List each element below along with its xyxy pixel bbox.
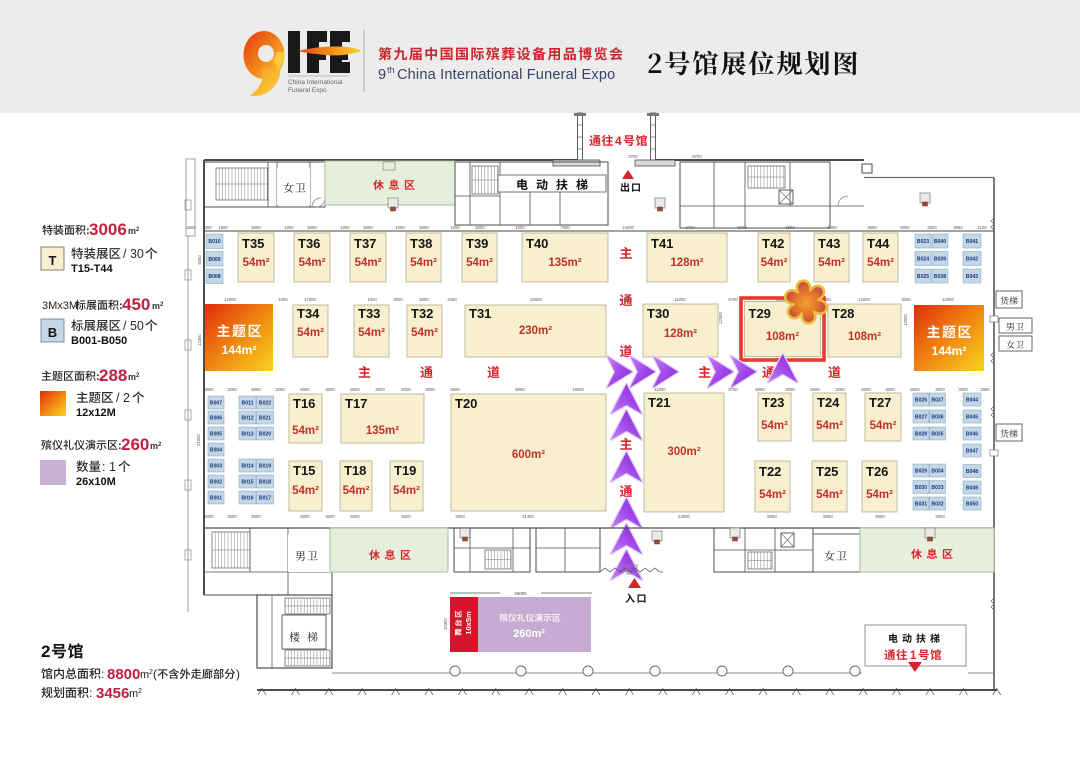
svg-text:T16: T16 [293, 396, 315, 411]
svg-text:54m²: 54m² [292, 485, 319, 497]
svg-text:3006: 3006 [89, 220, 127, 239]
svg-text:54m²: 54m² [870, 420, 897, 432]
svg-text:m: m [150, 441, 158, 451]
svg-text:(: ( [153, 667, 157, 681]
svg-text:T27: T27 [869, 395, 891, 410]
svg-text:1000: 1000 [450, 225, 460, 230]
svg-text:144m²: 144m² [932, 344, 967, 358]
svg-text:3000: 3000 [204, 387, 214, 392]
svg-text:B046: B046 [966, 432, 978, 438]
svg-text:B040: B040 [934, 239, 946, 245]
svg-text:54m²: 54m² [761, 420, 788, 432]
svg-text:12000: 12000 [224, 297, 236, 302]
svg-text:10x5m: 10x5m [464, 611, 473, 635]
svg-text:B050: B050 [966, 502, 978, 508]
svg-text:T43: T43 [818, 236, 840, 251]
svg-text:54m²: 54m² [761, 257, 788, 269]
svg-text:54m²: 54m² [867, 257, 894, 269]
svg-text:3000: 3000 [885, 387, 895, 392]
svg-text:B047: B047 [966, 449, 978, 455]
svg-text:B038: B038 [934, 274, 946, 280]
svg-text:54m²: 54m² [410, 257, 437, 269]
svg-text:T41: T41 [651, 236, 673, 251]
svg-text:B013: B013 [241, 432, 253, 438]
svg-text:128m²: 128m² [664, 328, 697, 340]
svg-text:135m²: 135m² [548, 257, 581, 269]
svg-text:26000: 26000 [514, 591, 527, 596]
svg-text:108m²: 108m² [848, 331, 881, 343]
svg-text:26x10M: 26x10M [76, 476, 116, 488]
svg-text:B007: B007 [210, 401, 222, 407]
svg-text:6000: 6000 [755, 387, 765, 392]
svg-text:B017: B017 [259, 496, 271, 502]
svg-text:17000: 17000 [304, 297, 316, 302]
svg-text:6000: 6000 [251, 387, 261, 392]
svg-text:T30: T30 [647, 306, 669, 321]
svg-text:260: 260 [121, 435, 149, 454]
svg-text:T15-T44: T15-T44 [71, 263, 113, 275]
svg-text:6000: 6000 [910, 387, 920, 392]
svg-text:3456: 3456 [96, 685, 129, 702]
svg-text:/ 50: / 50 [123, 319, 144, 333]
svg-text:T39: T39 [466, 236, 488, 251]
svg-text:m: m [128, 372, 136, 382]
svg-text:4400: 4400 [447, 297, 457, 302]
svg-text:B023: B023 [917, 239, 929, 245]
svg-text:3000: 3000 [275, 387, 285, 392]
svg-text:T42: T42 [762, 236, 784, 251]
svg-text:1000: 1000 [367, 297, 377, 302]
svg-text:6000: 6000 [307, 225, 317, 230]
svg-text:T21: T21 [648, 395, 670, 410]
svg-text:B031: B031 [915, 502, 927, 508]
svg-text:T15: T15 [293, 463, 315, 478]
svg-text:4000: 4000 [785, 387, 795, 392]
svg-text:B041: B041 [966, 239, 978, 245]
svg-text:B027: B027 [915, 415, 927, 421]
svg-text:600m²: 600m² [512, 449, 545, 461]
svg-text:B015: B015 [241, 480, 253, 486]
svg-text:th: th [387, 65, 395, 75]
svg-text:B037: B037 [931, 398, 943, 404]
svg-text:6000: 6000 [475, 225, 485, 230]
svg-text:144m²: 144m² [222, 343, 257, 357]
svg-text:B043: B043 [966, 274, 978, 280]
svg-text:5700: 5700 [728, 297, 738, 302]
svg-text:China International: China International [288, 79, 343, 86]
svg-text:1000: 1000 [284, 225, 294, 230]
svg-text:1000: 1000 [340, 225, 350, 230]
svg-text:B004: B004 [210, 448, 222, 454]
svg-text:T23: T23 [762, 395, 784, 410]
svg-text:B035: B035 [931, 432, 943, 438]
svg-text:6000: 6000 [300, 387, 310, 392]
svg-text:B030: B030 [915, 485, 927, 491]
svg-text:54m²: 54m² [292, 425, 319, 437]
svg-text:7000: 7000 [560, 225, 570, 230]
svg-text:6000: 6000 [419, 225, 429, 230]
svg-text:6000: 6000 [767, 514, 777, 519]
svg-text:T22: T22 [759, 464, 781, 479]
svg-text:12000: 12000 [858, 297, 870, 302]
svg-text:1000: 1000 [278, 297, 288, 302]
svg-text:3000: 3000 [393, 297, 403, 302]
svg-text:T32: T32 [411, 306, 433, 321]
svg-text:5700: 5700 [728, 387, 738, 392]
svg-text:230m²: 230m² [519, 325, 552, 337]
svg-text:/ 30: / 30 [123, 247, 144, 261]
svg-text:T44: T44 [867, 236, 890, 251]
svg-text:3080: 3080 [953, 225, 963, 230]
svg-text:B018: B018 [259, 480, 271, 486]
svg-text::: : [101, 667, 104, 681]
svg-text:128m²: 128m² [670, 257, 703, 269]
svg-text:54m²: 54m² [816, 420, 843, 432]
svg-text:B036: B036 [931, 415, 943, 421]
svg-text::: : [89, 686, 92, 700]
svg-text:21400: 21400 [522, 514, 534, 519]
svg-text:2100: 2100 [977, 225, 987, 230]
svg-text:54m²: 54m² [866, 489, 893, 501]
svg-text:6000: 6000 [350, 387, 360, 392]
svg-text:6000: 6000 [300, 514, 310, 519]
svg-text:20000: 20000 [530, 297, 542, 302]
svg-text:54m²: 54m² [759, 489, 786, 501]
svg-text:54m²: 54m² [358, 327, 385, 339]
svg-text:B034: B034 [931, 469, 943, 475]
svg-text:B048: B048 [966, 469, 978, 475]
svg-text:21000: 21000 [196, 434, 201, 446]
svg-text:12300: 12300 [197, 334, 202, 346]
svg-text:135m²: 135m² [366, 425, 399, 437]
svg-text:6000: 6000 [827, 225, 837, 230]
svg-text:B028: B028 [915, 432, 927, 438]
svg-text:1800: 1800 [785, 225, 795, 230]
svg-text:T20: T20 [455, 396, 477, 411]
svg-text:m: m [129, 688, 138, 700]
svg-text:): ) [236, 667, 240, 681]
svg-text:4: 4 [615, 134, 622, 148]
svg-text:B006: B006 [210, 416, 222, 422]
svg-text:6000: 6000 [401, 514, 411, 519]
svg-text:T18: T18 [344, 463, 366, 478]
svg-text:3500: 3500 [867, 225, 877, 230]
svg-text:T19: T19 [394, 463, 416, 478]
svg-text:Funeral Expo: Funeral Expo [288, 87, 327, 94]
svg-text:m: m [128, 226, 136, 236]
svg-text:54m²: 54m² [411, 327, 438, 339]
svg-text:T33: T33 [358, 306, 380, 321]
svg-text:12000: 12000 [942, 297, 954, 302]
svg-text:288: 288 [99, 366, 127, 385]
svg-text:54m²: 54m² [355, 257, 382, 269]
svg-text:3000: 3000 [935, 387, 945, 392]
svg-text:450: 450 [122, 295, 150, 314]
svg-text:54m²: 54m² [243, 257, 270, 269]
svg-text:6000: 6000 [251, 225, 261, 230]
svg-text:T36: T36 [298, 236, 320, 251]
svg-text:B001-B050: B001-B050 [71, 335, 127, 347]
svg-text:6000: 6000 [861, 387, 871, 392]
svg-text:54m²: 54m² [343, 485, 370, 497]
svg-text:54m²: 54m² [393, 485, 420, 497]
svg-text:12x12M: 12x12M [76, 407, 116, 419]
svg-text:B044: B044 [966, 398, 978, 404]
svg-text:8700: 8700 [692, 154, 702, 159]
svg-text:6000: 6000 [875, 514, 885, 519]
svg-text:B003: B003 [210, 464, 222, 470]
svg-text:China International Funeral Ex: China International Funeral Expo [397, 67, 615, 83]
svg-text:10300: 10300 [443, 618, 448, 630]
svg-text:1000: 1000 [395, 225, 405, 230]
svg-text:19500: 19500 [572, 387, 584, 392]
svg-text:3000: 3000 [455, 514, 465, 519]
svg-text:6000: 6000 [810, 387, 820, 392]
svg-text:B033: B033 [931, 485, 943, 491]
svg-text:B032: B032 [931, 502, 943, 508]
svg-text:2700: 2700 [685, 225, 695, 230]
svg-text:/ 2: / 2 [116, 391, 130, 405]
svg-text:24000: 24000 [678, 514, 690, 519]
svg-text:11000: 11000 [654, 387, 666, 392]
svg-text:B010: B010 [208, 239, 220, 245]
svg-text:3000: 3000 [958, 387, 968, 392]
svg-text:3000: 3000 [325, 514, 335, 519]
svg-text:B049: B049 [966, 486, 978, 492]
svg-text:B: B [48, 325, 57, 340]
svg-text:12000: 12000 [718, 312, 723, 324]
svg-text:6000: 6000 [350, 514, 360, 519]
svg-text:9: 9 [378, 67, 386, 83]
svg-text:T31: T31 [469, 306, 491, 321]
svg-text:B002: B002 [210, 480, 222, 486]
svg-text:B001: B001 [210, 496, 222, 502]
svg-text:T24: T24 [817, 395, 840, 410]
svg-text:14200: 14200 [622, 225, 634, 230]
svg-text:1400: 1400 [202, 225, 212, 230]
svg-text:6000: 6000 [737, 225, 747, 230]
svg-text:6000: 6000 [419, 297, 429, 302]
svg-text:B026: B026 [915, 398, 927, 404]
svg-text:T17: T17 [345, 396, 367, 411]
svg-text:1900: 1900 [218, 225, 228, 230]
svg-text:2: 2 [138, 688, 142, 695]
svg-text:3000: 3000 [835, 387, 845, 392]
svg-text:B029: B029 [915, 469, 927, 475]
svg-text:260m²: 260m² [513, 628, 545, 640]
svg-text:3000: 3000 [227, 514, 237, 519]
svg-text:m: m [140, 669, 149, 681]
svg-text:9300: 9300 [197, 255, 202, 265]
svg-text:3000: 3000 [425, 387, 435, 392]
svg-text:54m²: 54m² [299, 257, 326, 269]
svg-text:T: T [49, 253, 57, 268]
svg-text:B005: B005 [210, 432, 222, 438]
svg-text:11000: 11000 [674, 297, 686, 302]
svg-text:2: 2 [41, 642, 50, 661]
svg-text:T37: T37 [354, 236, 376, 251]
svg-text:8000: 8000 [450, 387, 460, 392]
svg-text:T40: T40 [526, 236, 548, 251]
svg-text:6000: 6000 [823, 514, 833, 519]
svg-text:2500: 2500 [186, 225, 196, 230]
svg-text:B011: B011 [242, 401, 254, 407]
svg-text:300m²: 300m² [667, 446, 700, 458]
svg-text:B022: B022 [259, 401, 271, 407]
svg-text:B008: B008 [208, 274, 220, 280]
svg-text:T25: T25 [816, 464, 838, 479]
svg-text:3000: 3000 [227, 387, 237, 392]
svg-text:m: m [152, 301, 160, 311]
svg-text:54m²: 54m² [816, 489, 843, 501]
svg-text:T38: T38 [410, 236, 432, 251]
svg-text:B012: B012 [241, 416, 253, 422]
svg-text:B009: B009 [208, 257, 220, 263]
svg-text:6000: 6000 [401, 387, 411, 392]
svg-text:: 1: : 1 [102, 460, 116, 474]
svg-text:B020: B020 [259, 432, 271, 438]
svg-text:3Mx3M: 3Mx3M [42, 300, 78, 312]
svg-text:B024: B024 [917, 257, 929, 263]
svg-text:3000: 3000 [927, 225, 937, 230]
svg-text:108m²: 108m² [766, 331, 799, 343]
svg-text:B019: B019 [259, 464, 271, 470]
svg-text:3080: 3080 [980, 387, 990, 392]
svg-text:5000: 5000 [515, 387, 525, 392]
svg-text:6000: 6000 [251, 514, 261, 519]
svg-text:2700: 2700 [628, 154, 638, 159]
svg-text:T26: T26 [866, 464, 888, 479]
svg-text:54m²: 54m² [466, 257, 493, 269]
svg-text:T34: T34 [297, 306, 320, 321]
svg-text:4000: 4000 [204, 514, 214, 519]
svg-text:T35: T35 [242, 236, 264, 251]
svg-text:6000: 6000 [900, 225, 910, 230]
svg-text:54m²: 54m² [818, 257, 845, 269]
svg-text:1: 1 [910, 650, 917, 662]
svg-text:B042: B042 [966, 257, 978, 263]
svg-text:1000: 1000 [515, 225, 525, 230]
svg-text:12000: 12000 [903, 314, 908, 326]
svg-text:T29: T29 [749, 306, 771, 321]
svg-text:8800: 8800 [107, 666, 140, 683]
svg-text:3000: 3000 [935, 514, 945, 519]
svg-text:B039: B039 [934, 257, 946, 263]
svg-text:T28: T28 [832, 306, 854, 321]
svg-text:B025: B025 [917, 274, 929, 280]
svg-text:6000: 6000 [363, 225, 373, 230]
svg-text:3000: 3000 [325, 387, 335, 392]
svg-text:54m²: 54m² [297, 327, 324, 339]
svg-text:B014: B014 [241, 464, 253, 470]
svg-text:B045: B045 [966, 415, 978, 421]
svg-text:B021: B021 [259, 416, 271, 422]
svg-text:3000: 3000 [901, 297, 911, 302]
svg-text:3000: 3000 [375, 387, 385, 392]
svg-text:B016: B016 [241, 496, 253, 502]
